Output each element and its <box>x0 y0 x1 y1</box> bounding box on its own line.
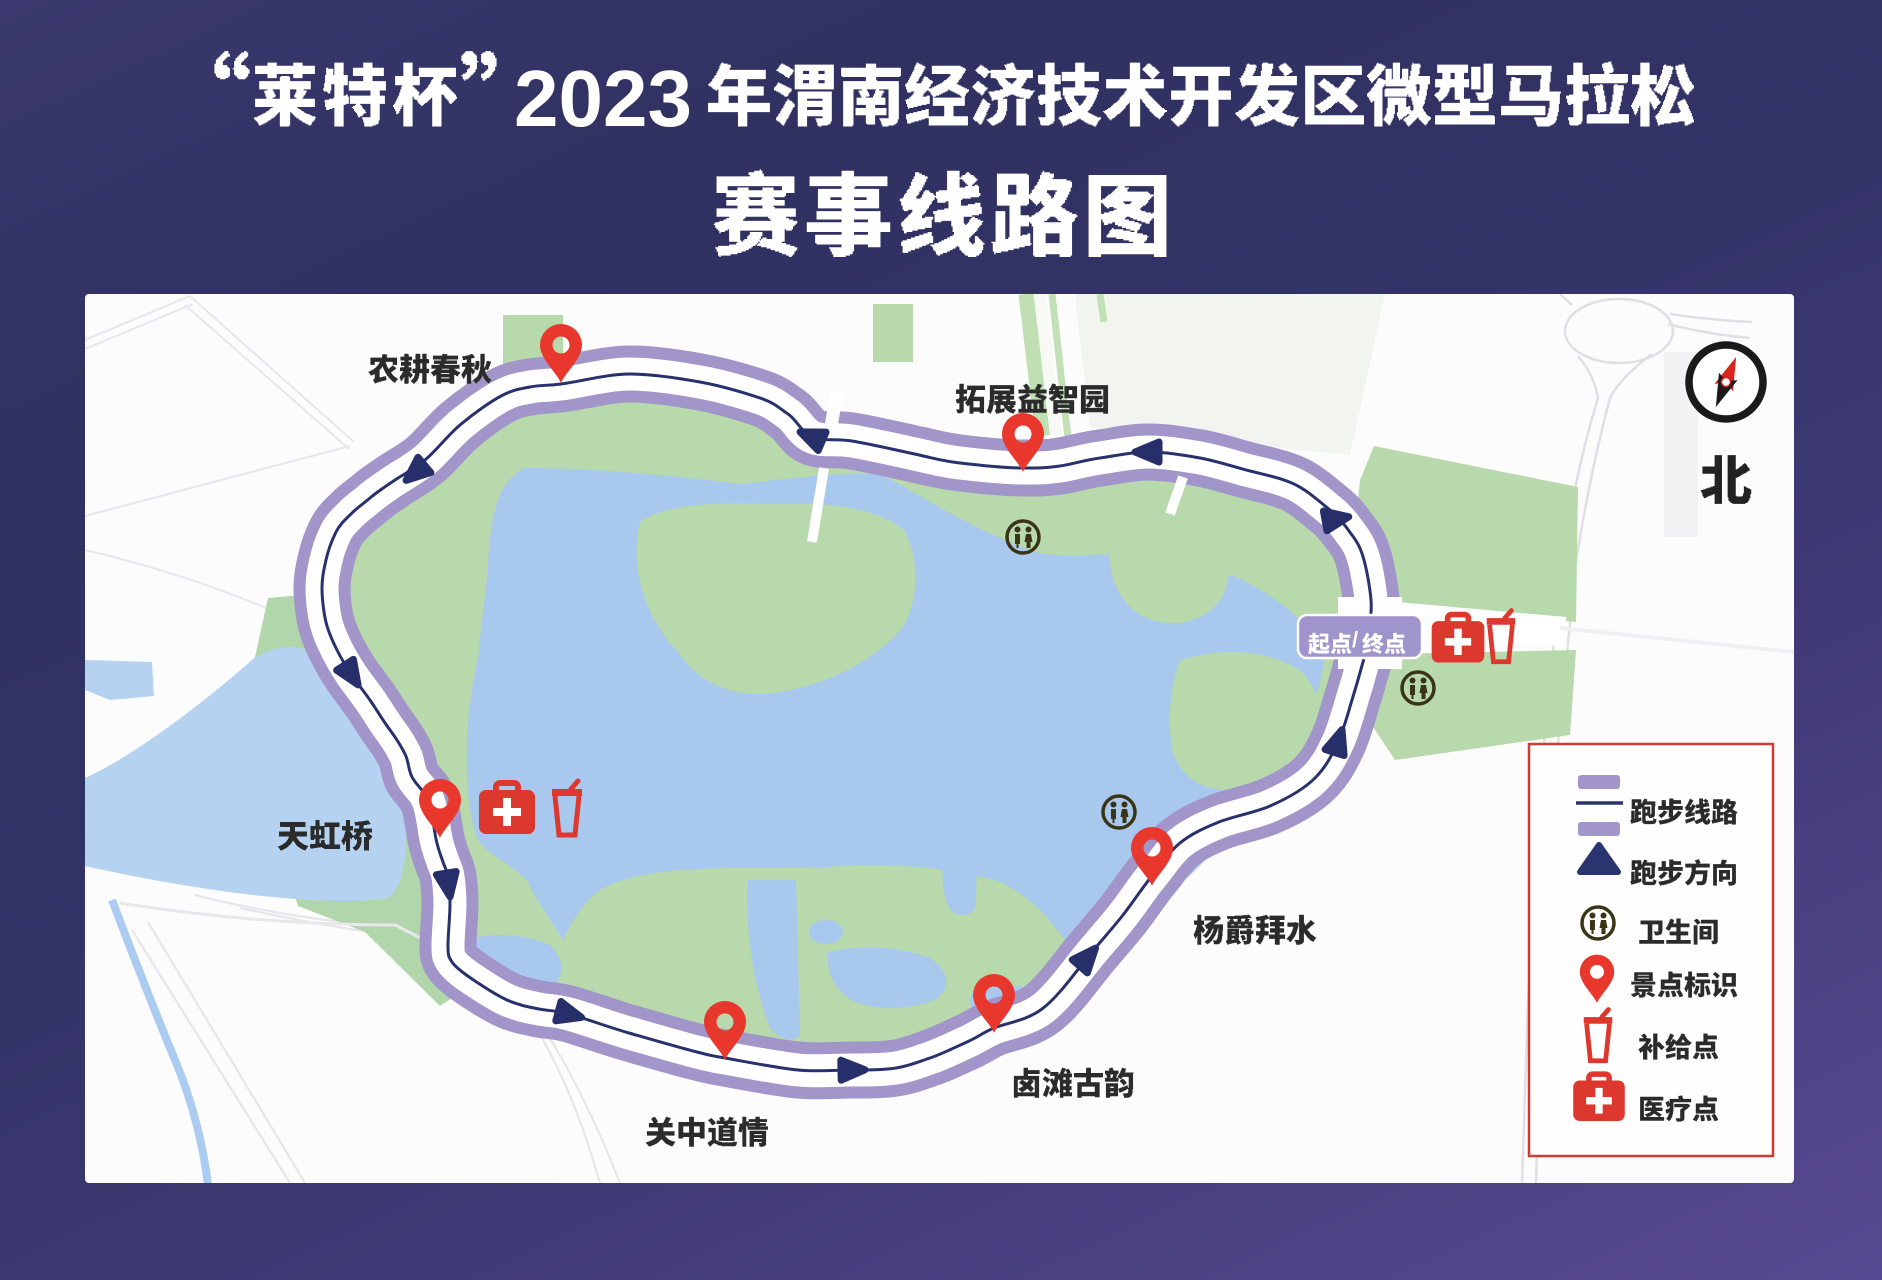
svg-text:2023: 2023 <box>514 54 692 143</box>
svg-text:/: / <box>1352 627 1358 652</box>
